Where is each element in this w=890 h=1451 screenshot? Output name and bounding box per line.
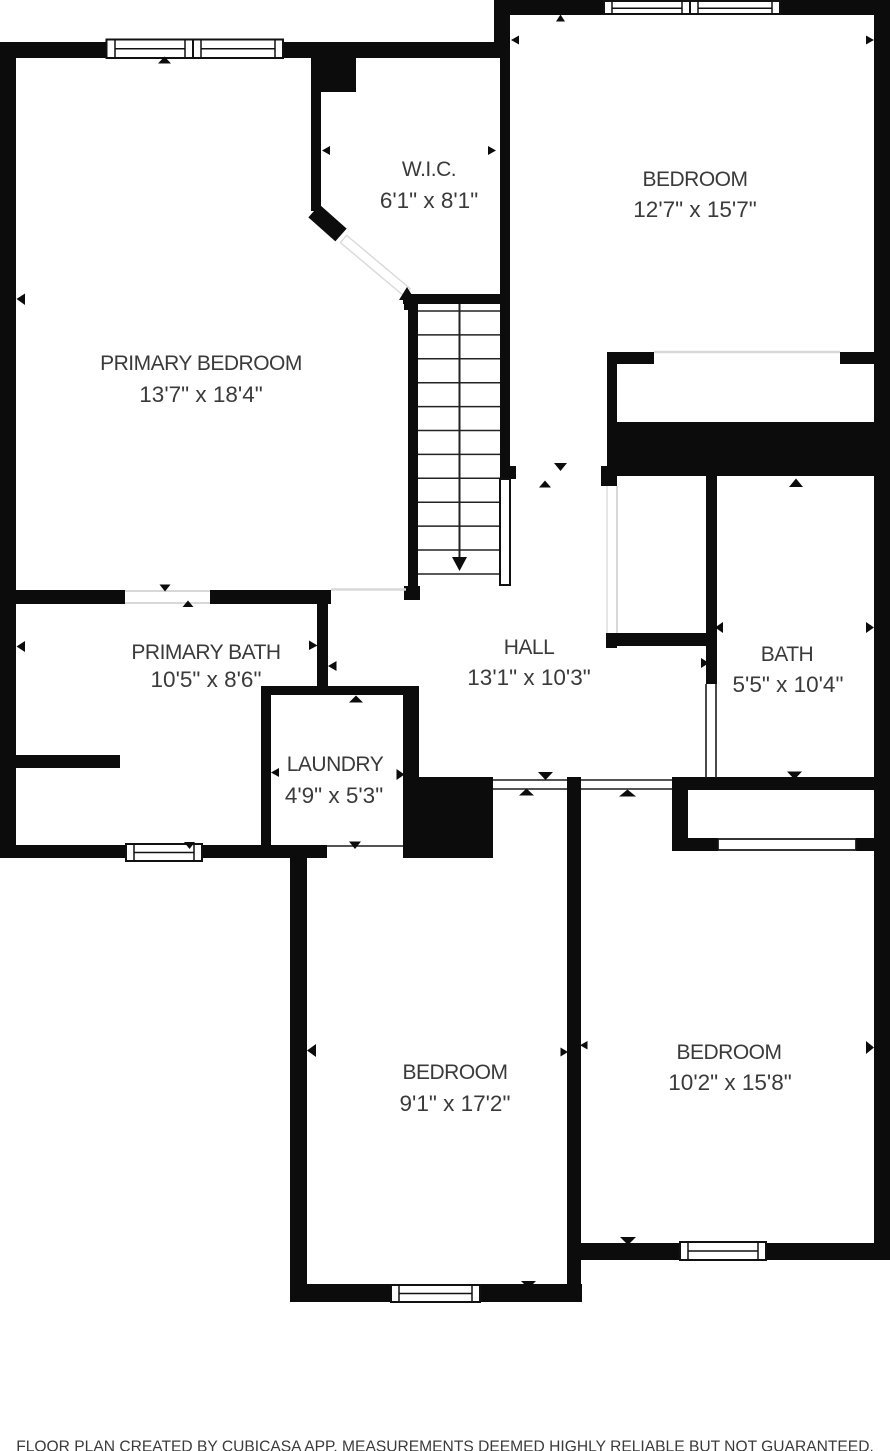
- svg-text:6'1" x 8'1": 6'1" x 8'1": [380, 188, 478, 213]
- svg-text:PRIMARY BATH: PRIMARY BATH: [131, 641, 280, 664]
- svg-text:4'9" x 5'3": 4'9" x 5'3": [285, 783, 383, 808]
- svg-text:BEDROOM: BEDROOM: [642, 168, 747, 191]
- svg-text:10'5" x 8'6": 10'5" x 8'6": [151, 667, 262, 692]
- svg-text:LAUNDRY: LAUNDRY: [287, 753, 384, 776]
- svg-text:13'1" x 10'3": 13'1" x 10'3": [467, 665, 590, 690]
- svg-text:FLOOR PLAN CREATED BY CUBICASA: FLOOR PLAN CREATED BY CUBICASA APP. MEAS…: [16, 1439, 874, 1451]
- svg-text:W.I.C.: W.I.C.: [402, 158, 456, 181]
- svg-text:BATH: BATH: [761, 643, 813, 666]
- svg-text:PRIMARY BEDROOM: PRIMARY BEDROOM: [100, 352, 302, 375]
- svg-text:12'7" x 15'7": 12'7" x 15'7": [633, 197, 756, 222]
- svg-text:10'2" x 15'8": 10'2" x 15'8": [668, 1070, 791, 1095]
- svg-text:HALL: HALL: [504, 636, 555, 659]
- svg-text:9'1" x 17'2": 9'1" x 17'2": [400, 1091, 511, 1116]
- svg-text:BEDROOM: BEDROOM: [402, 1061, 507, 1084]
- svg-text:BEDROOM: BEDROOM: [676, 1041, 781, 1064]
- svg-text:13'7" x 18'4": 13'7" x 18'4": [139, 382, 262, 407]
- svg-text:5'5" x 10'4": 5'5" x 10'4": [733, 672, 844, 697]
